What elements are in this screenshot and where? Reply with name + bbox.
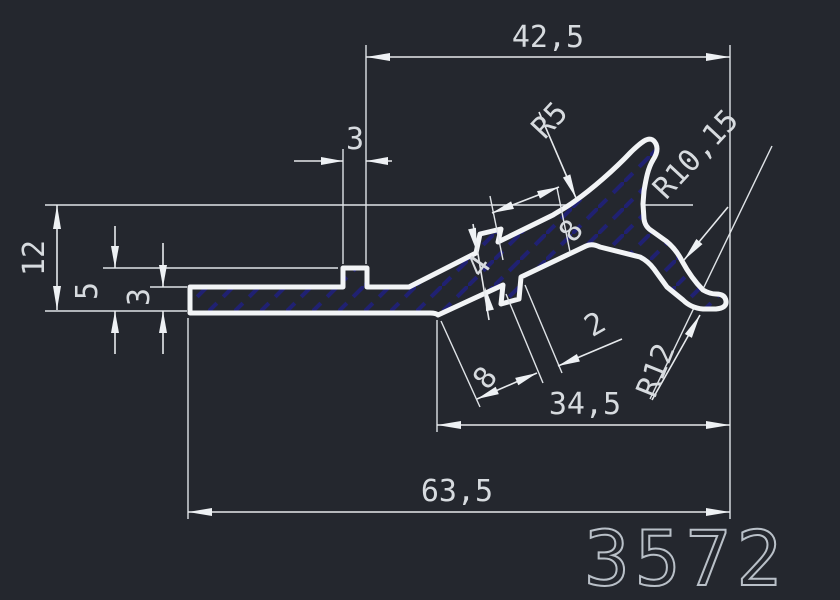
- dim-label: 12: [17, 240, 52, 276]
- cad-canvas: 42,5 3 12 5: [0, 0, 840, 600]
- part-number: 3572: [584, 514, 787, 600]
- dim-label: 5: [70, 282, 105, 300]
- cad-viewport: 42,5 3 12 5: [0, 0, 840, 600]
- dim-label: 3: [346, 122, 364, 157]
- dim-label: 3: [122, 288, 157, 306]
- dim-label: 34,5: [549, 387, 621, 422]
- dim-label: 63,5: [421, 474, 493, 509]
- dim-label: 42,5: [512, 20, 584, 55]
